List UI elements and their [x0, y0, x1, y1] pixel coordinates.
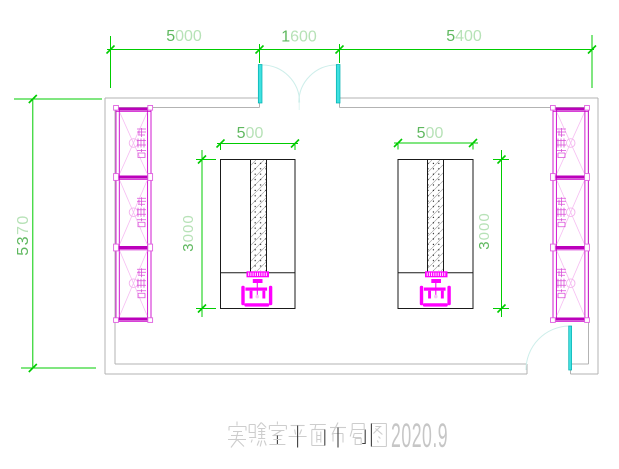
svg-text:2020.9: 2020.9: [391, 416, 448, 455]
svg-text:500: 500: [417, 125, 444, 142]
svg-text:1600: 1600: [281, 29, 317, 46]
svg-text:5370: 5370: [15, 214, 32, 256]
svg-text:5400: 5400: [446, 28, 482, 45]
svg-text:5000: 5000: [166, 28, 202, 45]
svg-text:3000: 3000: [180, 214, 197, 251]
svg-text:500: 500: [237, 125, 264, 142]
svg-text:3000: 3000: [476, 212, 493, 249]
